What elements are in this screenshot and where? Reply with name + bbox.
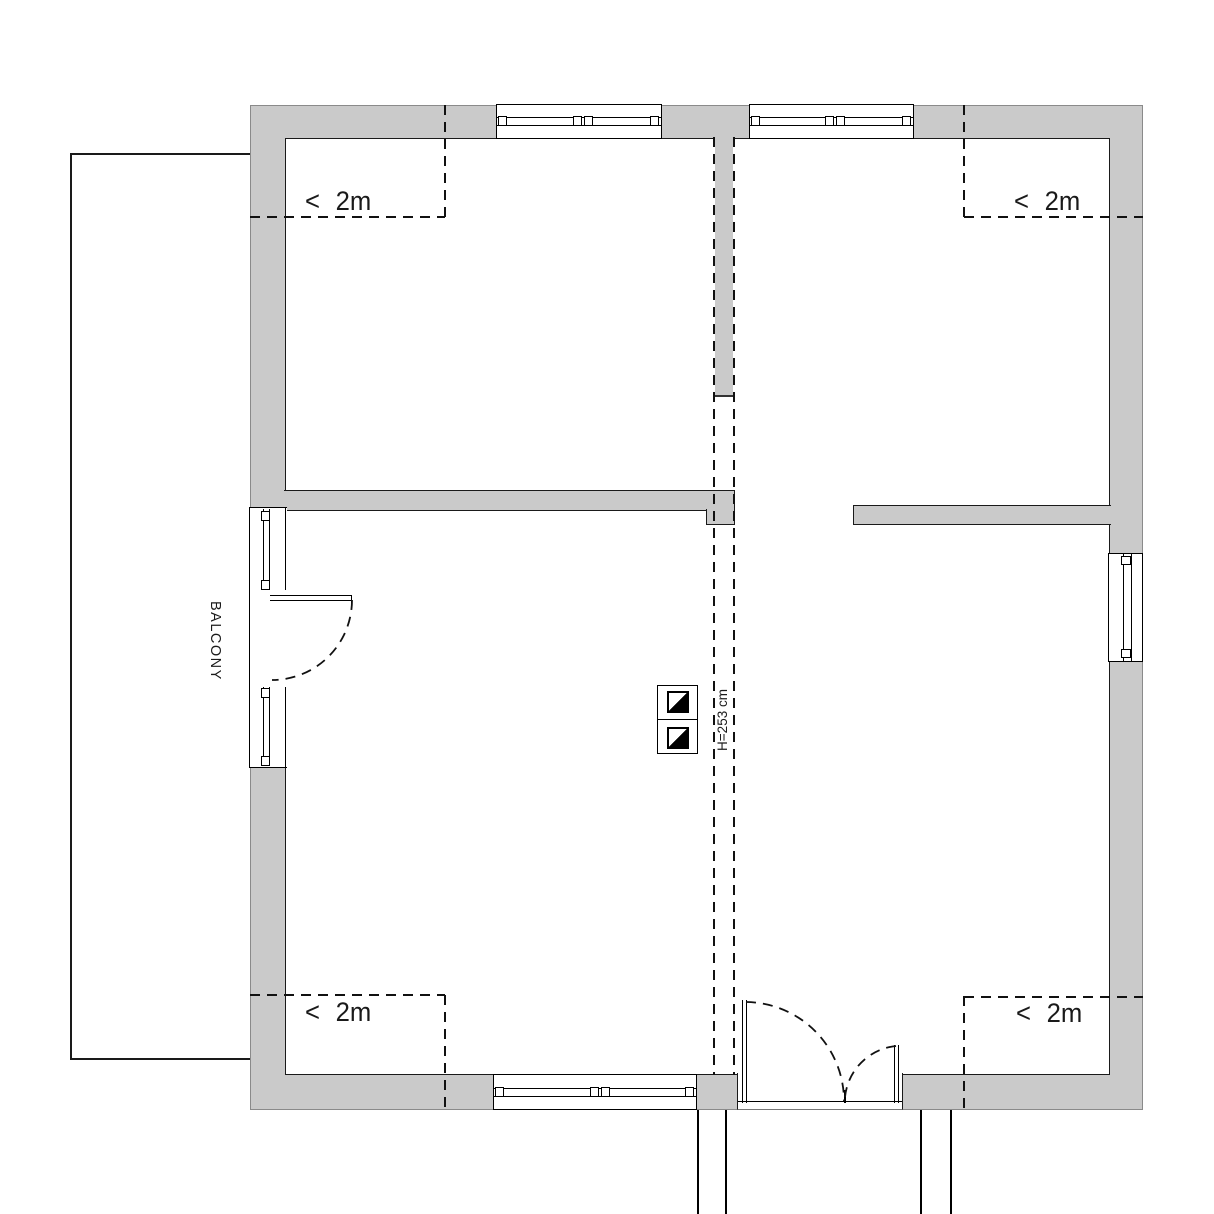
porch-edge-line <box>697 1110 699 1214</box>
mullion-block <box>495 1087 504 1097</box>
balcony-sidelight-upper <box>263 509 270 590</box>
mullion-block <box>261 688 270 698</box>
entrance-door-left-leaf <box>742 1000 747 1103</box>
headroom-label-top-right: < 2m <box>1014 186 1080 217</box>
ridge-height-label: H=253 cm <box>715 681 731 759</box>
window-top-left <box>496 104 662 139</box>
porch-edge-line <box>950 1110 952 1214</box>
mullion-block <box>584 116 593 126</box>
headroom-boundary-v-top-left <box>444 105 446 217</box>
ridge-line-right <box>733 137 735 1075</box>
mullion-block <box>650 116 659 126</box>
floor-plan: BALCONY <box>0 0 1214 1214</box>
window-glazing <box>1123 554 1132 661</box>
headroom-boundary-h-bottom-left <box>250 994 445 996</box>
central-wall-stub <box>715 137 733 396</box>
porch-edge-line <box>920 1110 922 1214</box>
entrance-threshold <box>738 1101 902 1102</box>
mullion-block <box>825 116 834 126</box>
headroom-boundary-v-bottom-left <box>444 995 446 1110</box>
balcony-door-leaf <box>270 595 352 601</box>
entrance-door-meeting-stile <box>844 1090 846 1103</box>
height-marker-divider <box>658 719 697 720</box>
slope-triangle-icon <box>667 727 689 749</box>
mullion-block <box>601 1087 610 1097</box>
entrance-door-opening <box>737 1073 903 1110</box>
mullion-block <box>751 116 760 126</box>
mullion-block <box>590 1087 599 1097</box>
partition-wall-right <box>853 505 1111 525</box>
window-bottom <box>493 1074 697 1110</box>
headroom-label-bottom-right: < 2m <box>1016 998 1082 1029</box>
porch-edge-line <box>725 1110 727 1214</box>
slope-triangle-icon <box>667 691 689 713</box>
window-top-right <box>749 104 914 139</box>
mullion-block <box>836 116 845 126</box>
headroom-boundary-v-top-right <box>963 105 965 217</box>
balcony-outline <box>70 153 250 1060</box>
mullion-block <box>261 580 270 590</box>
mullion-block <box>685 1087 694 1097</box>
balcony-assembly-jamb-lower <box>285 687 287 768</box>
headroom-label-bottom-left: < 2m <box>305 997 371 1028</box>
mullion-block <box>498 116 507 126</box>
headroom-boundary-v-bottom-right <box>963 996 965 1110</box>
window-right <box>1108 553 1143 662</box>
mullion-block <box>573 116 582 126</box>
entrance-door-right-leaf <box>894 1045 899 1103</box>
headroom-label-top-left: < 2m <box>305 186 371 217</box>
partition-wall-left <box>284 490 735 511</box>
interior-outline <box>285 138 1110 1075</box>
mullion-block <box>261 756 270 766</box>
mullion-block <box>1121 649 1131 658</box>
mullion-block <box>1121 556 1131 565</box>
mullion-block <box>261 511 270 521</box>
ridge-line-left <box>713 137 715 1075</box>
partition-wall-left-step <box>706 509 735 525</box>
balcony-door-leaf-end <box>351 595 353 606</box>
balcony-sidelight-lower <box>263 687 270 766</box>
balcony-label: BALCONY <box>207 601 223 681</box>
height-marker-symbol <box>657 685 698 754</box>
balcony-assembly-jamb-upper <box>285 507 287 590</box>
mullion-block <box>902 116 911 126</box>
central-wall-stub-cap <box>713 395 735 397</box>
